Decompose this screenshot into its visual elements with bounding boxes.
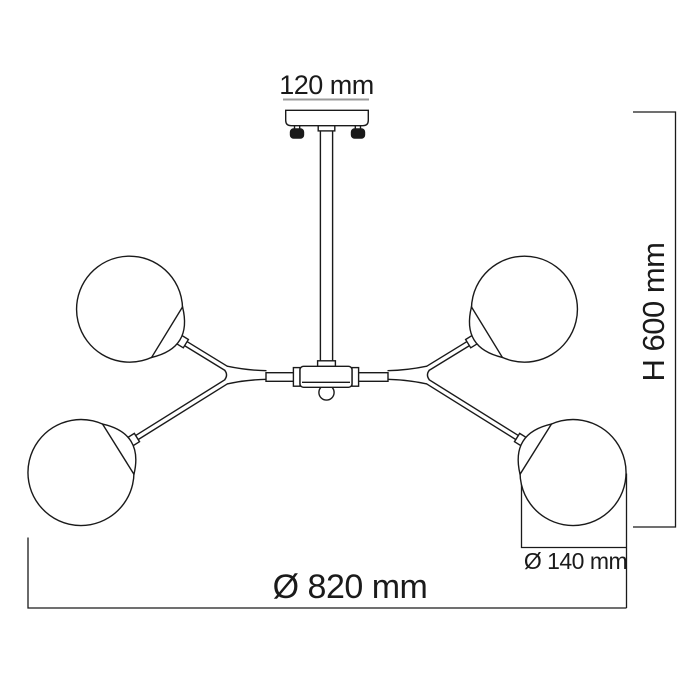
chandelier-dimension-diagram: 120 mm H 600 mm Ø 820 mm Ø 140 mm xyxy=(0,0,700,700)
washer-left xyxy=(293,368,300,387)
dim-globe-diameter-label: Ø 140 mm xyxy=(524,548,627,574)
washer-right xyxy=(352,368,359,387)
fork-left xyxy=(8,236,267,545)
arm-left xyxy=(266,373,294,382)
canopy-screw-left xyxy=(291,129,304,138)
dim-height-label: H 600 mm xyxy=(636,243,671,382)
stem-rod xyxy=(320,126,332,363)
fork-right xyxy=(388,236,647,545)
dim-total-diameter-label: Ø 820 mm xyxy=(273,568,428,606)
stem-top-collar xyxy=(318,126,335,131)
ceiling-canopy xyxy=(286,110,369,125)
arm-right xyxy=(358,373,388,382)
chandelier-drawing xyxy=(8,110,646,545)
dim-canopy-width-label: 120 mm xyxy=(279,70,374,100)
central-hub xyxy=(300,366,352,387)
canopy-screw-right xyxy=(352,129,365,138)
diagram-canvas: 120 mm H 600 mm Ø 820 mm Ø 140 mm xyxy=(0,0,700,700)
